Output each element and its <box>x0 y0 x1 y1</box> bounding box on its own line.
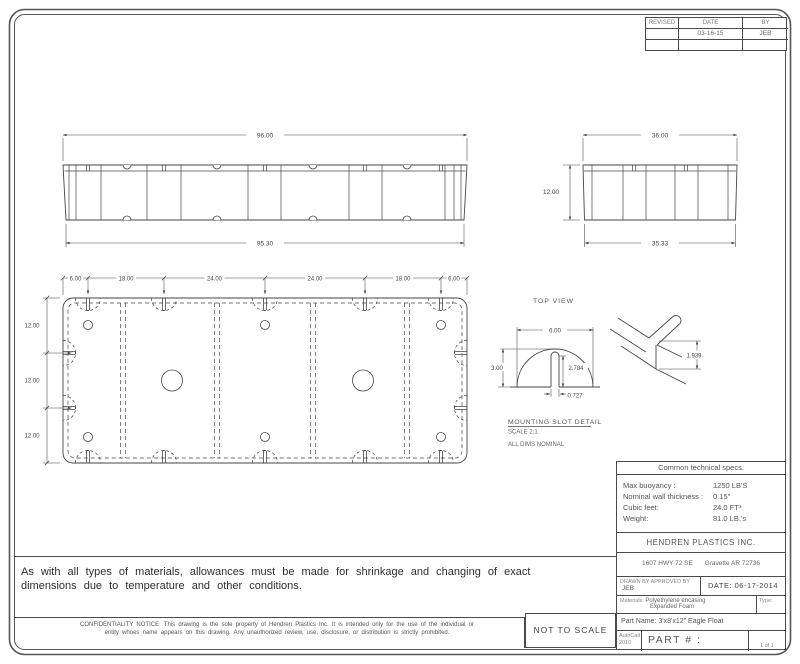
svg-text:6.00: 6.00 <box>448 277 460 283</box>
plan-dim-labels: 6.00 18.00 24.00 24.00 18.00 6.00 12.00 … <box>24 275 461 440</box>
plan-view-holes <box>84 321 446 442</box>
spec-label: Weight: <box>623 513 713 524</box>
sheet-count: 1 of 1 <box>749 631 785 651</box>
svg-text:24.00: 24.00 <box>307 277 323 283</box>
revision-header-revised: REVISED <box>646 18 679 29</box>
confidentiality-line-2: entity whoes name appears on this drawin… <box>44 630 510 638</box>
svg-text:12.00: 12.00 <box>24 324 40 330</box>
materials-value-1: Polyethylene encasing <box>645 598 705 604</box>
spec-label: Cubic feet: <box>623 502 713 513</box>
approved-by-label: APPROVED BY <box>651 579 690 585</box>
materials-row: Materials: Polyethylene encasing Expande… <box>617 596 785 614</box>
front-view-dimensions <box>63 135 467 247</box>
disclaimer-line-2: dimensions due to temperature and other … <box>21 580 610 594</box>
top-view-label: TOP VIEW <box>533 298 574 305</box>
front-bottom-length-dim: 95.30 <box>257 241 274 248</box>
spec-value: 81.0 LB.'s <box>713 513 779 524</box>
svg-text:24.00: 24.00 <box>207 277 223 283</box>
svg-text:12.00: 12.00 <box>24 379 40 385</box>
materials-value-2: Expanded Foam <box>620 604 756 610</box>
end-width-dim: 36.00 <box>652 133 669 140</box>
revision-by-value: JEB <box>743 29 788 40</box>
drawn-by-row: DRAWN BY APPROVED BY JEB DATE: 06-17-201… <box>617 577 785 596</box>
part-number-value: PART # : EF3812 <box>642 631 749 651</box>
not-to-scale-box: NOT TO SCALE <box>525 613 616 648</box>
revision-header-by: BY <box>743 18 788 29</box>
spec-row-wall-thickness: Nominal wall thickness : 0.15" <box>623 491 779 502</box>
svg-text:6.00: 6.00 <box>549 329 561 335</box>
drawing-sheet: 96.00 95.30 36.00 35.33 12.00 <box>0 0 800 664</box>
spec-value: 24.0 FT³ <box>713 502 779 513</box>
svg-text:0.727: 0.727 <box>567 394 583 400</box>
iso-detail-dim: 1.939 <box>686 354 702 360</box>
company-address-street: 1607 HWY 72 SE <box>642 560 693 567</box>
part-number-row: AutoCad 2010 PART # : EF3812 1 of 1 <box>617 631 785 651</box>
software-cell: AutoCad 2010 <box>617 631 642 651</box>
part-name-label: Part Name: <box>621 618 656 625</box>
slot-detail-labels: 6.00 3.00 2.784 0.727 MOUNTING SLOT DETA… <box>486 329 602 449</box>
materials-cell: Materials: Polyethylene encasing Expande… <box>617 596 757 613</box>
iso-slot-detail <box>610 316 706 385</box>
plan-view <box>43 276 469 465</box>
plan-left-dim-chain <box>43 298 72 463</box>
end-view-dimensions <box>563 135 737 247</box>
revision-table: REVISED DATE BY 03-16-15 JEB <box>645 17 787 51</box>
svg-text:ALL DIMS NOMINAL: ALL DIMS NOMINAL <box>508 442 565 448</box>
revision-cell <box>743 40 788 51</box>
spec-value: 0.15" <box>713 491 779 502</box>
revision-cell <box>646 29 679 40</box>
software-name: AutoCad <box>619 633 641 640</box>
revision-date-value: 03-16-15 <box>679 29 743 40</box>
spec-row-cubic-feet: Cubic feet: 24.0 FT³ <box>623 502 779 513</box>
date-value: 06-17-2014 <box>735 581 778 590</box>
disclaimer-line-1: As with all types of materials, allowanc… <box>21 566 610 580</box>
svg-text:18.00: 18.00 <box>395 277 411 283</box>
svg-text:18.00: 18.00 <box>118 277 134 283</box>
svg-text:3.00: 3.00 <box>491 366 503 372</box>
specs-title: Common technical specs. <box>617 462 785 475</box>
svg-text:MOUNTING SLOT DETAIL: MOUNTING SLOT DETAIL <box>508 419 602 426</box>
type-cell: Type: <box>757 596 785 613</box>
date-cell: DATE: 06-17-2014 <box>701 577 785 595</box>
svg-text:SCALE 2:1: SCALE 2:1 <box>508 430 538 436</box>
spec-row-buoyancy: Max buoyancy : 1250 LB'S <box>623 480 779 491</box>
company-name: HENDREN PLASTICS INC. <box>617 533 785 553</box>
company-address-city: Gravette AR 72736 <box>705 560 760 567</box>
disclaimer-note: As with all types of materials, allowanc… <box>14 556 616 617</box>
spec-value: 1250 LB'S <box>713 480 779 491</box>
drawn-by-cell: DRAWN BY APPROVED BY JEB <box>617 577 701 595</box>
date-label: DATE: <box>708 581 732 590</box>
svg-text:12.00: 12.00 <box>24 434 40 440</box>
spec-row-weight: Weight: 81.0 LB.'s <box>623 513 779 524</box>
svg-text:6.00: 6.00 <box>70 277 82 283</box>
confidentiality-line-1: CONFIDENTIALITY NOTICE: This drawing is … <box>44 622 510 630</box>
software-version: 2010 <box>619 640 641 647</box>
materials-label: Materials: <box>620 598 644 604</box>
end-bottom-width-dim: 35.33 <box>652 241 669 248</box>
slot-detail-dimensions <box>498 327 593 397</box>
company-address: 1607 HWY 72 SE Gravette AR 72736 <box>617 553 785 577</box>
spec-label: Max buoyancy : <box>623 480 713 491</box>
part-name-value: 3'x8'x12" Eagle Float <box>658 618 723 625</box>
drawn-by-initials: JEB <box>620 585 700 592</box>
revision-cell <box>646 40 679 51</box>
spec-label: Nominal wall thickness : <box>623 491 713 502</box>
confidentiality-notice: CONFIDENTIALITY NOTICE: This drawing is … <box>14 617 525 648</box>
front-view <box>63 135 467 247</box>
end-height-dim: 12.00 <box>543 189 560 196</box>
specs-table: Max buoyancy : 1250 LB'S Nominal wall th… <box>617 475 785 533</box>
revision-cell <box>679 40 743 51</box>
title-block: Common technical specs. Max buoyancy : 1… <box>616 461 786 650</box>
end-view <box>563 135 737 247</box>
part-name-row: Part Name: 3'x8'x12" Eagle Float <box>617 614 785 631</box>
mounting-slot-detail <box>498 327 600 427</box>
revision-header-date: DATE <box>679 18 743 29</box>
svg-text:2.784: 2.784 <box>568 366 584 372</box>
front-length-dim: 96.00 <box>257 133 274 140</box>
